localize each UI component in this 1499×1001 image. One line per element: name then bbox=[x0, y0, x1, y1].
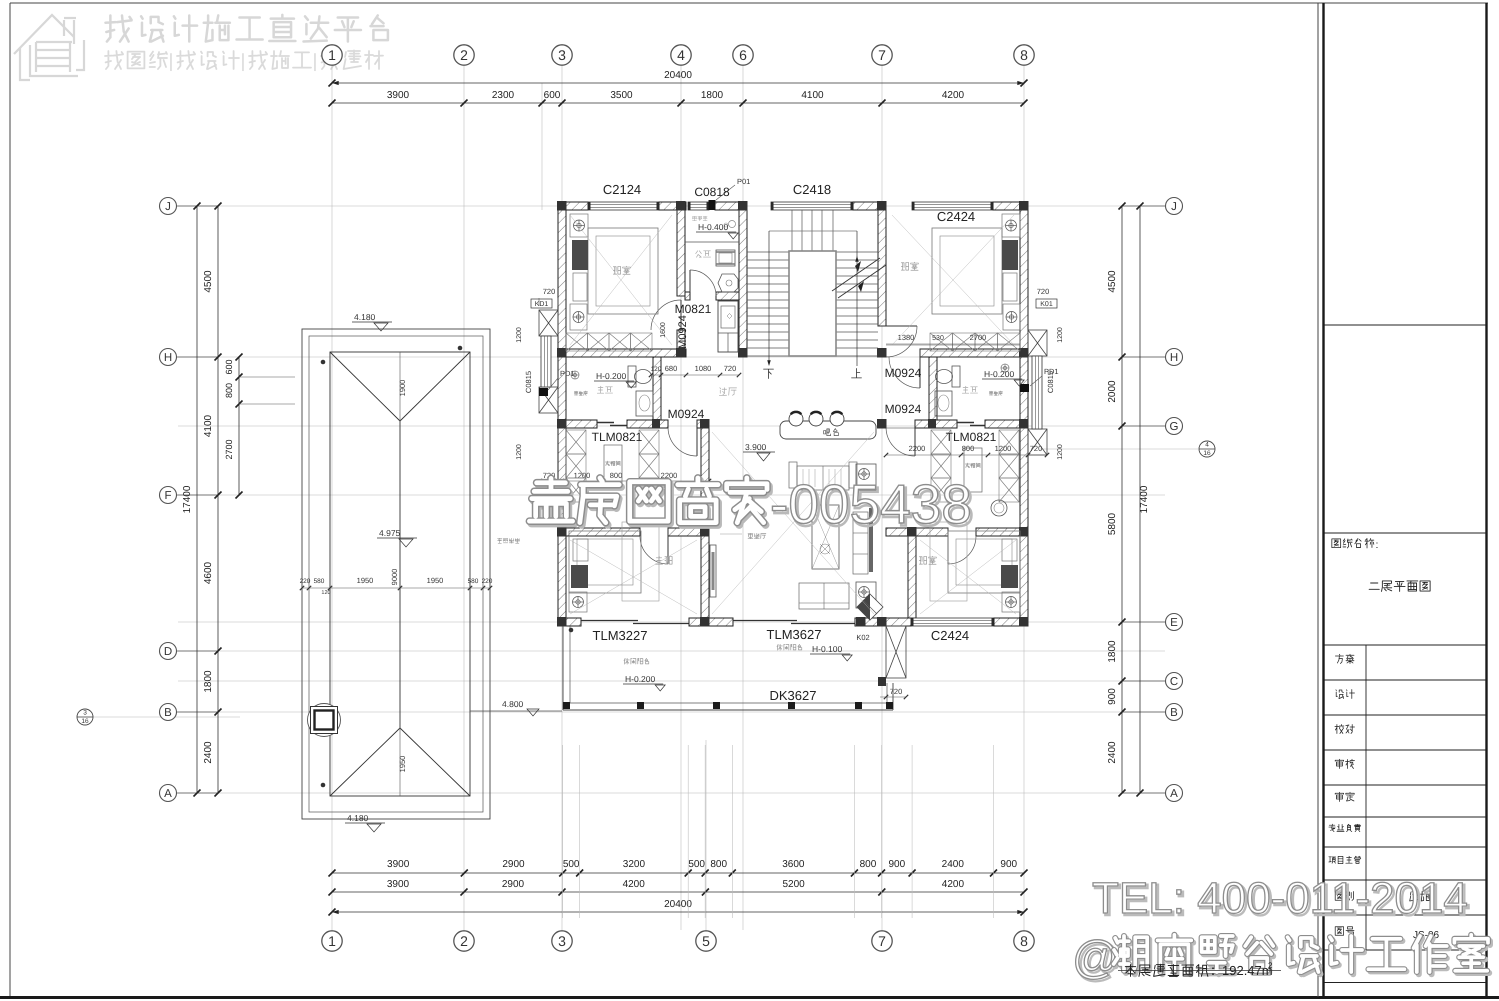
svg-text:900: 900 bbox=[1000, 859, 1017, 870]
svg-text:PD1: PD1 bbox=[1044, 367, 1059, 376]
svg-text:1600: 1600 bbox=[660, 322, 667, 338]
svg-text:4200: 4200 bbox=[942, 90, 965, 101]
svg-text:B: B bbox=[1170, 707, 1178, 719]
svg-text:DK3627: DK3627 bbox=[770, 688, 817, 703]
svg-text:3900: 3900 bbox=[387, 90, 410, 101]
svg-text:3: 3 bbox=[558, 47, 566, 63]
svg-text:M0924: M0924 bbox=[677, 315, 689, 349]
svg-text:6: 6 bbox=[739, 47, 747, 63]
svg-text:2400: 2400 bbox=[942, 859, 965, 870]
svg-text:5: 5 bbox=[702, 933, 710, 949]
svg-text:TLM0821: TLM0821 bbox=[592, 430, 643, 444]
svg-text:@: @ bbox=[1072, 931, 1119, 983]
svg-text:1950: 1950 bbox=[427, 576, 444, 585]
svg-text:500: 500 bbox=[688, 859, 705, 870]
svg-text:G: G bbox=[1170, 421, 1179, 433]
svg-text:F: F bbox=[164, 490, 171, 502]
svg-text:3: 3 bbox=[558, 933, 566, 949]
svg-text:H-0.100: H-0.100 bbox=[812, 644, 843, 654]
svg-text:2: 2 bbox=[460, 933, 468, 949]
svg-text:C2424: C2424 bbox=[937, 209, 975, 224]
svg-text:B: B bbox=[164, 707, 172, 719]
svg-text:4600: 4600 bbox=[203, 561, 214, 584]
svg-text:3900: 3900 bbox=[387, 879, 410, 890]
svg-text:3600: 3600 bbox=[782, 859, 805, 870]
svg-text:1: 1 bbox=[328, 933, 336, 949]
svg-text:17400: 17400 bbox=[182, 485, 193, 513]
svg-text:720: 720 bbox=[724, 364, 737, 373]
svg-text:4.800: 4.800 bbox=[502, 699, 524, 709]
svg-text:1900: 1900 bbox=[398, 380, 407, 397]
svg-text:800: 800 bbox=[860, 859, 877, 870]
svg-text:2: 2 bbox=[460, 47, 468, 63]
svg-text:PD1: PD1 bbox=[560, 369, 575, 378]
svg-text:2900: 2900 bbox=[502, 859, 525, 870]
svg-text::: : bbox=[1376, 539, 1379, 551]
svg-text:|: | bbox=[241, 51, 246, 72]
svg-text:16: 16 bbox=[81, 718, 89, 725]
svg-text:-005438: -005438 bbox=[770, 473, 972, 535]
svg-text:17400: 17400 bbox=[1139, 485, 1150, 513]
svg-text:720: 720 bbox=[1037, 287, 1050, 296]
svg-text:C2418: C2418 bbox=[793, 182, 831, 197]
svg-text:7: 7 bbox=[878, 933, 886, 949]
svg-text:2700: 2700 bbox=[970, 333, 987, 342]
svg-text:2900: 2900 bbox=[502, 879, 525, 890]
svg-text:5800: 5800 bbox=[1107, 512, 1118, 535]
svg-text:P01: P01 bbox=[737, 177, 750, 186]
svg-text:H-0.200: H-0.200 bbox=[984, 369, 1015, 379]
svg-text:7: 7 bbox=[878, 47, 886, 63]
svg-text:H-0.200: H-0.200 bbox=[596, 371, 627, 381]
svg-text:D: D bbox=[164, 646, 172, 658]
svg-text:680: 680 bbox=[665, 364, 678, 373]
svg-text:：: ： bbox=[1210, 964, 1222, 978]
svg-text:4.180: 4.180 bbox=[354, 312, 376, 322]
svg-text:580: 580 bbox=[314, 578, 325, 585]
svg-text:4: 4 bbox=[1205, 442, 1209, 449]
svg-text:4: 4 bbox=[677, 47, 685, 63]
svg-text:1800: 1800 bbox=[1107, 640, 1118, 663]
svg-text:800: 800 bbox=[710, 859, 727, 870]
svg-text:TLM3227: TLM3227 bbox=[593, 628, 648, 643]
svg-text:4500: 4500 bbox=[203, 270, 214, 293]
svg-text:120: 120 bbox=[651, 366, 662, 373]
svg-text:TEL: 400-011-2014: TEL: 400-011-2014 bbox=[1092, 874, 1468, 923]
svg-text:3500: 3500 bbox=[610, 90, 633, 101]
svg-text:20400: 20400 bbox=[664, 70, 692, 81]
svg-text:TLM3627: TLM3627 bbox=[767, 627, 822, 642]
svg-text:1200: 1200 bbox=[574, 471, 591, 480]
svg-text:1080: 1080 bbox=[695, 364, 712, 373]
svg-text:9000: 9000 bbox=[390, 569, 399, 586]
svg-text:1800: 1800 bbox=[701, 90, 724, 101]
svg-text:2700: 2700 bbox=[224, 439, 234, 459]
svg-text:A: A bbox=[164, 788, 172, 800]
svg-text:A: A bbox=[1170, 788, 1178, 800]
svg-text:TLM0821: TLM0821 bbox=[946, 430, 997, 444]
svg-text:1200: 1200 bbox=[516, 327, 523, 343]
svg-text:1200: 1200 bbox=[995, 444, 1012, 453]
svg-text:C: C bbox=[1170, 676, 1178, 688]
svg-text:1200: 1200 bbox=[1057, 327, 1064, 343]
svg-text:4100: 4100 bbox=[203, 414, 214, 437]
svg-text:900: 900 bbox=[1107, 688, 1118, 705]
svg-text:600: 600 bbox=[224, 359, 234, 374]
svg-text:720: 720 bbox=[890, 687, 903, 696]
svg-text:J: J bbox=[165, 201, 171, 213]
svg-text:800: 800 bbox=[962, 444, 975, 453]
svg-text:2400: 2400 bbox=[203, 741, 214, 764]
svg-text:720: 720 bbox=[543, 287, 556, 296]
svg-text:C0818: C0818 bbox=[694, 185, 730, 199]
svg-text:16: 16 bbox=[1203, 450, 1211, 457]
svg-text:530: 530 bbox=[932, 335, 944, 342]
svg-text:4100: 4100 bbox=[801, 90, 824, 101]
svg-text:720: 720 bbox=[1030, 444, 1043, 453]
svg-text:H: H bbox=[1170, 352, 1178, 364]
svg-text:M0821: M0821 bbox=[675, 302, 712, 316]
svg-text:2300: 2300 bbox=[492, 90, 515, 101]
svg-text:1950: 1950 bbox=[357, 576, 374, 585]
svg-text:3: 3 bbox=[83, 710, 87, 717]
svg-text:4.975: 4.975 bbox=[379, 528, 401, 538]
svg-text:2: 2 bbox=[1268, 961, 1273, 970]
svg-text:8: 8 bbox=[1020, 933, 1028, 949]
svg-text:K02: K02 bbox=[856, 633, 869, 642]
svg-text:E: E bbox=[1170, 617, 1178, 629]
svg-text:220: 220 bbox=[482, 578, 493, 585]
svg-text:|: | bbox=[169, 51, 174, 72]
svg-text:M0924: M0924 bbox=[885, 366, 922, 380]
svg-text:H-0.200: H-0.200 bbox=[625, 674, 656, 684]
svg-text:C0815: C0815 bbox=[524, 371, 533, 393]
svg-text:120: 120 bbox=[321, 590, 330, 596]
svg-text:4500: 4500 bbox=[1107, 270, 1118, 293]
svg-text:2400: 2400 bbox=[1107, 741, 1118, 764]
svg-text:1800: 1800 bbox=[203, 670, 214, 693]
svg-text:KD1: KD1 bbox=[535, 301, 549, 308]
svg-text:5200: 5200 bbox=[782, 879, 805, 890]
svg-text:600: 600 bbox=[544, 90, 561, 101]
svg-text:M0924: M0924 bbox=[668, 407, 705, 421]
svg-text:1950: 1950 bbox=[398, 756, 407, 773]
svg-text:3900: 3900 bbox=[387, 859, 410, 870]
svg-text:2200: 2200 bbox=[909, 444, 926, 453]
svg-text:900: 900 bbox=[888, 859, 905, 870]
svg-text:1200: 1200 bbox=[516, 444, 523, 460]
svg-text:220: 220 bbox=[300, 578, 311, 585]
svg-text:800: 800 bbox=[610, 471, 623, 480]
svg-text:C2424: C2424 bbox=[931, 628, 969, 643]
svg-text:J: J bbox=[1171, 201, 1177, 213]
svg-text:H-0.400: H-0.400 bbox=[698, 222, 729, 232]
svg-text:3200: 3200 bbox=[623, 859, 646, 870]
svg-text:8: 8 bbox=[1020, 47, 1028, 63]
svg-text:|: | bbox=[313, 51, 318, 72]
svg-text:1200: 1200 bbox=[1057, 444, 1064, 460]
svg-text:2000: 2000 bbox=[1107, 380, 1118, 403]
svg-text:H: H bbox=[164, 352, 172, 364]
svg-text:3.900: 3.900 bbox=[745, 442, 767, 452]
svg-text:800: 800 bbox=[224, 383, 234, 398]
svg-text:C2124: C2124 bbox=[603, 182, 641, 197]
svg-text:K01: K01 bbox=[1040, 301, 1053, 308]
svg-text:4.180: 4.180 bbox=[347, 813, 369, 823]
svg-text:4200: 4200 bbox=[623, 879, 646, 890]
svg-text:4200: 4200 bbox=[942, 879, 965, 890]
svg-text:580: 580 bbox=[468, 578, 479, 585]
svg-text:M0924: M0924 bbox=[885, 402, 922, 416]
svg-text:1380: 1380 bbox=[898, 333, 915, 342]
svg-text:500: 500 bbox=[563, 859, 580, 870]
svg-text:1: 1 bbox=[328, 47, 336, 63]
